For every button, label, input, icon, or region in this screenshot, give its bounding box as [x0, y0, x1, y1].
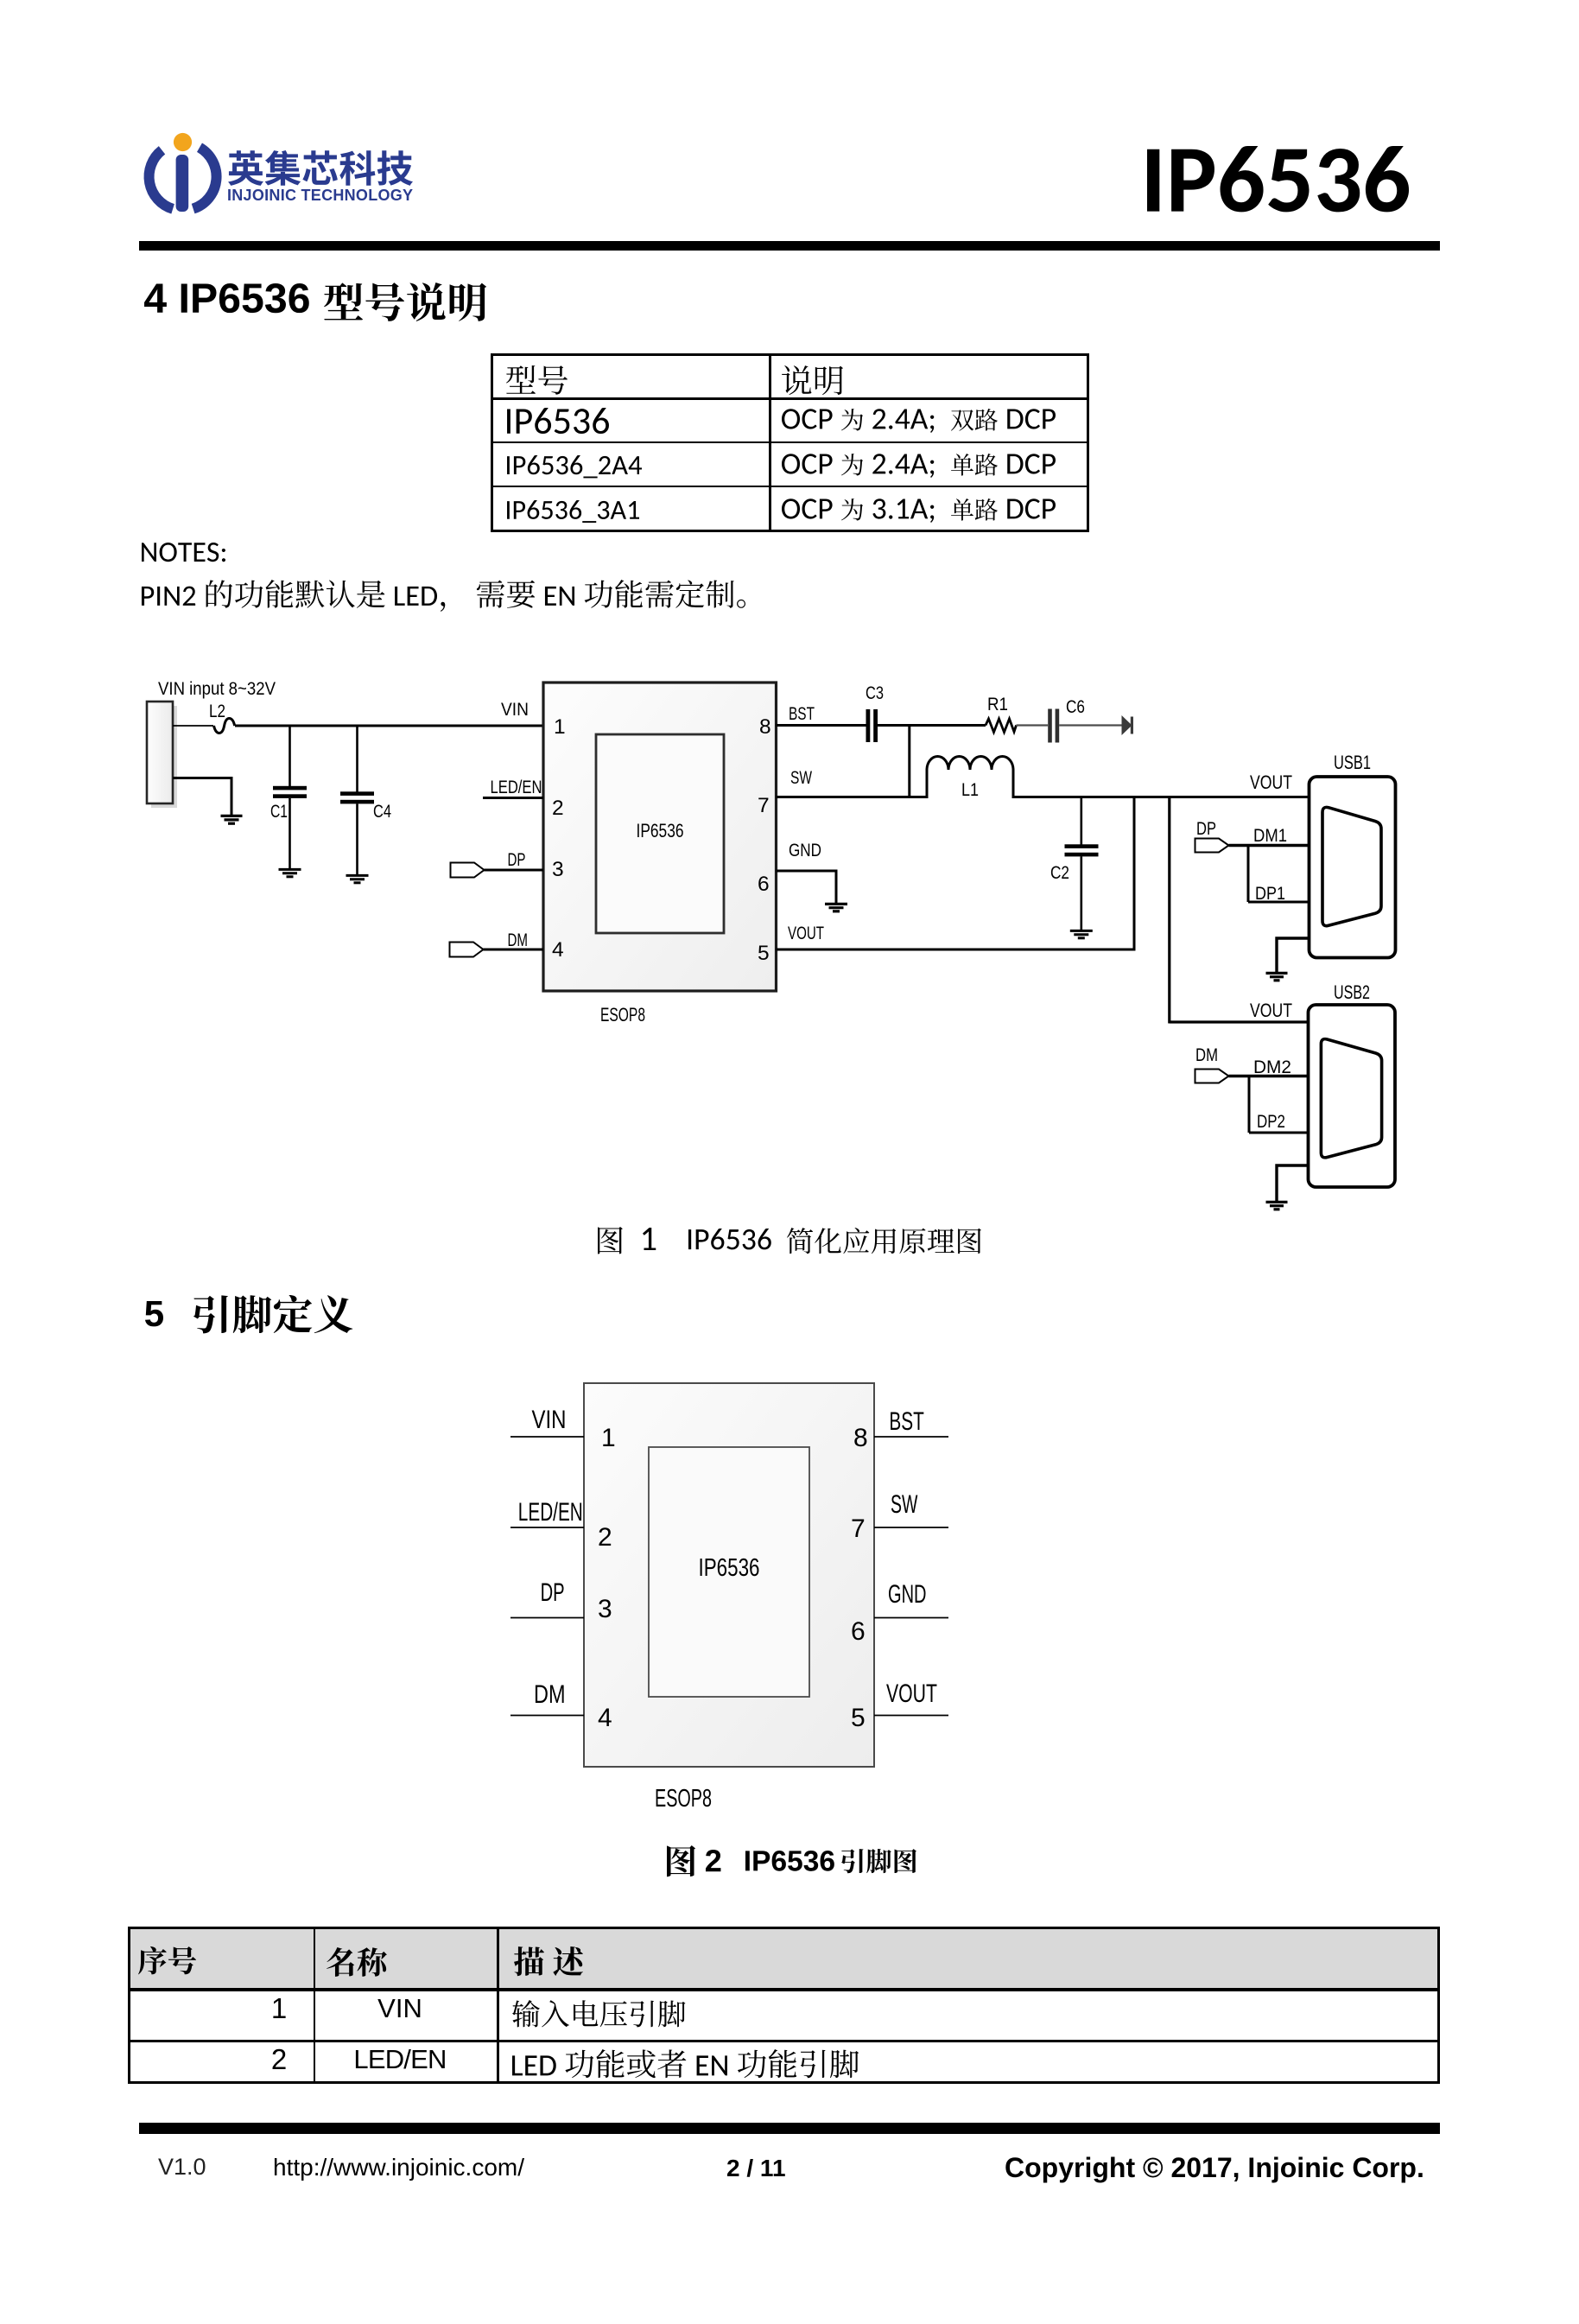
svg-text:DM: DM [508, 930, 529, 950]
svg-text:4: 4 [598, 1704, 612, 1732]
svg-text:VIN: VIN [501, 700, 529, 720]
svg-text:LED/EN: LED/EN [491, 778, 542, 797]
svg-text:VOUT: VOUT [886, 1680, 937, 1708]
svg-text:R1: R1 [987, 695, 1008, 714]
svg-text:USB1: USB1 [1334, 752, 1371, 773]
svg-text:SW: SW [790, 768, 812, 788]
svg-text:C3: C3 [866, 683, 884, 703]
svg-text:5: 5 [758, 942, 770, 965]
svg-text:VOUT: VOUT [788, 924, 824, 943]
svg-text:GND: GND [888, 1580, 927, 1609]
svg-text:1: 1 [601, 1424, 616, 1452]
svg-text:2: 2 [598, 1523, 612, 1552]
svg-text:6: 6 [758, 873, 770, 896]
svg-text:USB2: USB2 [1334, 981, 1370, 1003]
svg-text:8: 8 [759, 715, 771, 739]
svg-text:7: 7 [851, 1514, 866, 1543]
svg-text:BST: BST [789, 704, 815, 724]
svg-text:ESOP8: ESOP8 [655, 1785, 712, 1813]
svg-text:DM: DM [534, 1680, 566, 1709]
svg-text:DP: DP [1196, 819, 1216, 839]
svg-text:C4: C4 [373, 802, 391, 822]
svg-text:1: 1 [554, 715, 566, 739]
svg-text:SW: SW [891, 1490, 918, 1519]
svg-text:GND: GND [789, 841, 821, 860]
svg-text:4: 4 [552, 938, 564, 962]
svg-text:VOUT: VOUT [1250, 771, 1292, 793]
svg-text:L2: L2 [209, 702, 225, 721]
svg-text:C2: C2 [1050, 863, 1069, 883]
svg-text:DP1: DP1 [1255, 884, 1285, 904]
svg-text:2: 2 [552, 797, 564, 820]
svg-text:C6: C6 [1066, 697, 1085, 717]
svg-text:VIN: VIN [532, 1406, 567, 1434]
svg-text:3: 3 [598, 1595, 612, 1623]
svg-text:IP6536: IP6536 [637, 820, 684, 841]
svg-text:DP: DP [508, 850, 526, 870]
svg-text:DP2: DP2 [1257, 1112, 1285, 1132]
svg-text:LED/EN: LED/EN [518, 1498, 583, 1527]
svg-text:VIN input 8~32V: VIN input 8~32V [158, 679, 276, 699]
svg-text:DM2: DM2 [1253, 1057, 1291, 1077]
svg-text:8: 8 [853, 1424, 868, 1452]
svg-text:7: 7 [758, 794, 770, 817]
svg-text:6: 6 [851, 1617, 866, 1646]
svg-text:DP: DP [541, 1578, 565, 1607]
svg-text:DM1: DM1 [1253, 826, 1287, 846]
svg-text:IP6536: IP6536 [699, 1554, 760, 1582]
svg-text:L1: L1 [961, 780, 979, 800]
svg-text:5: 5 [851, 1704, 866, 1732]
svg-text:VOUT: VOUT [1250, 1000, 1292, 1021]
svg-text:BST: BST [889, 1407, 924, 1436]
svg-text:C1: C1 [270, 802, 288, 822]
svg-text:ESOP8: ESOP8 [600, 1004, 645, 1025]
svg-text:DM: DM [1195, 1045, 1218, 1065]
svg-text:3: 3 [552, 858, 564, 881]
